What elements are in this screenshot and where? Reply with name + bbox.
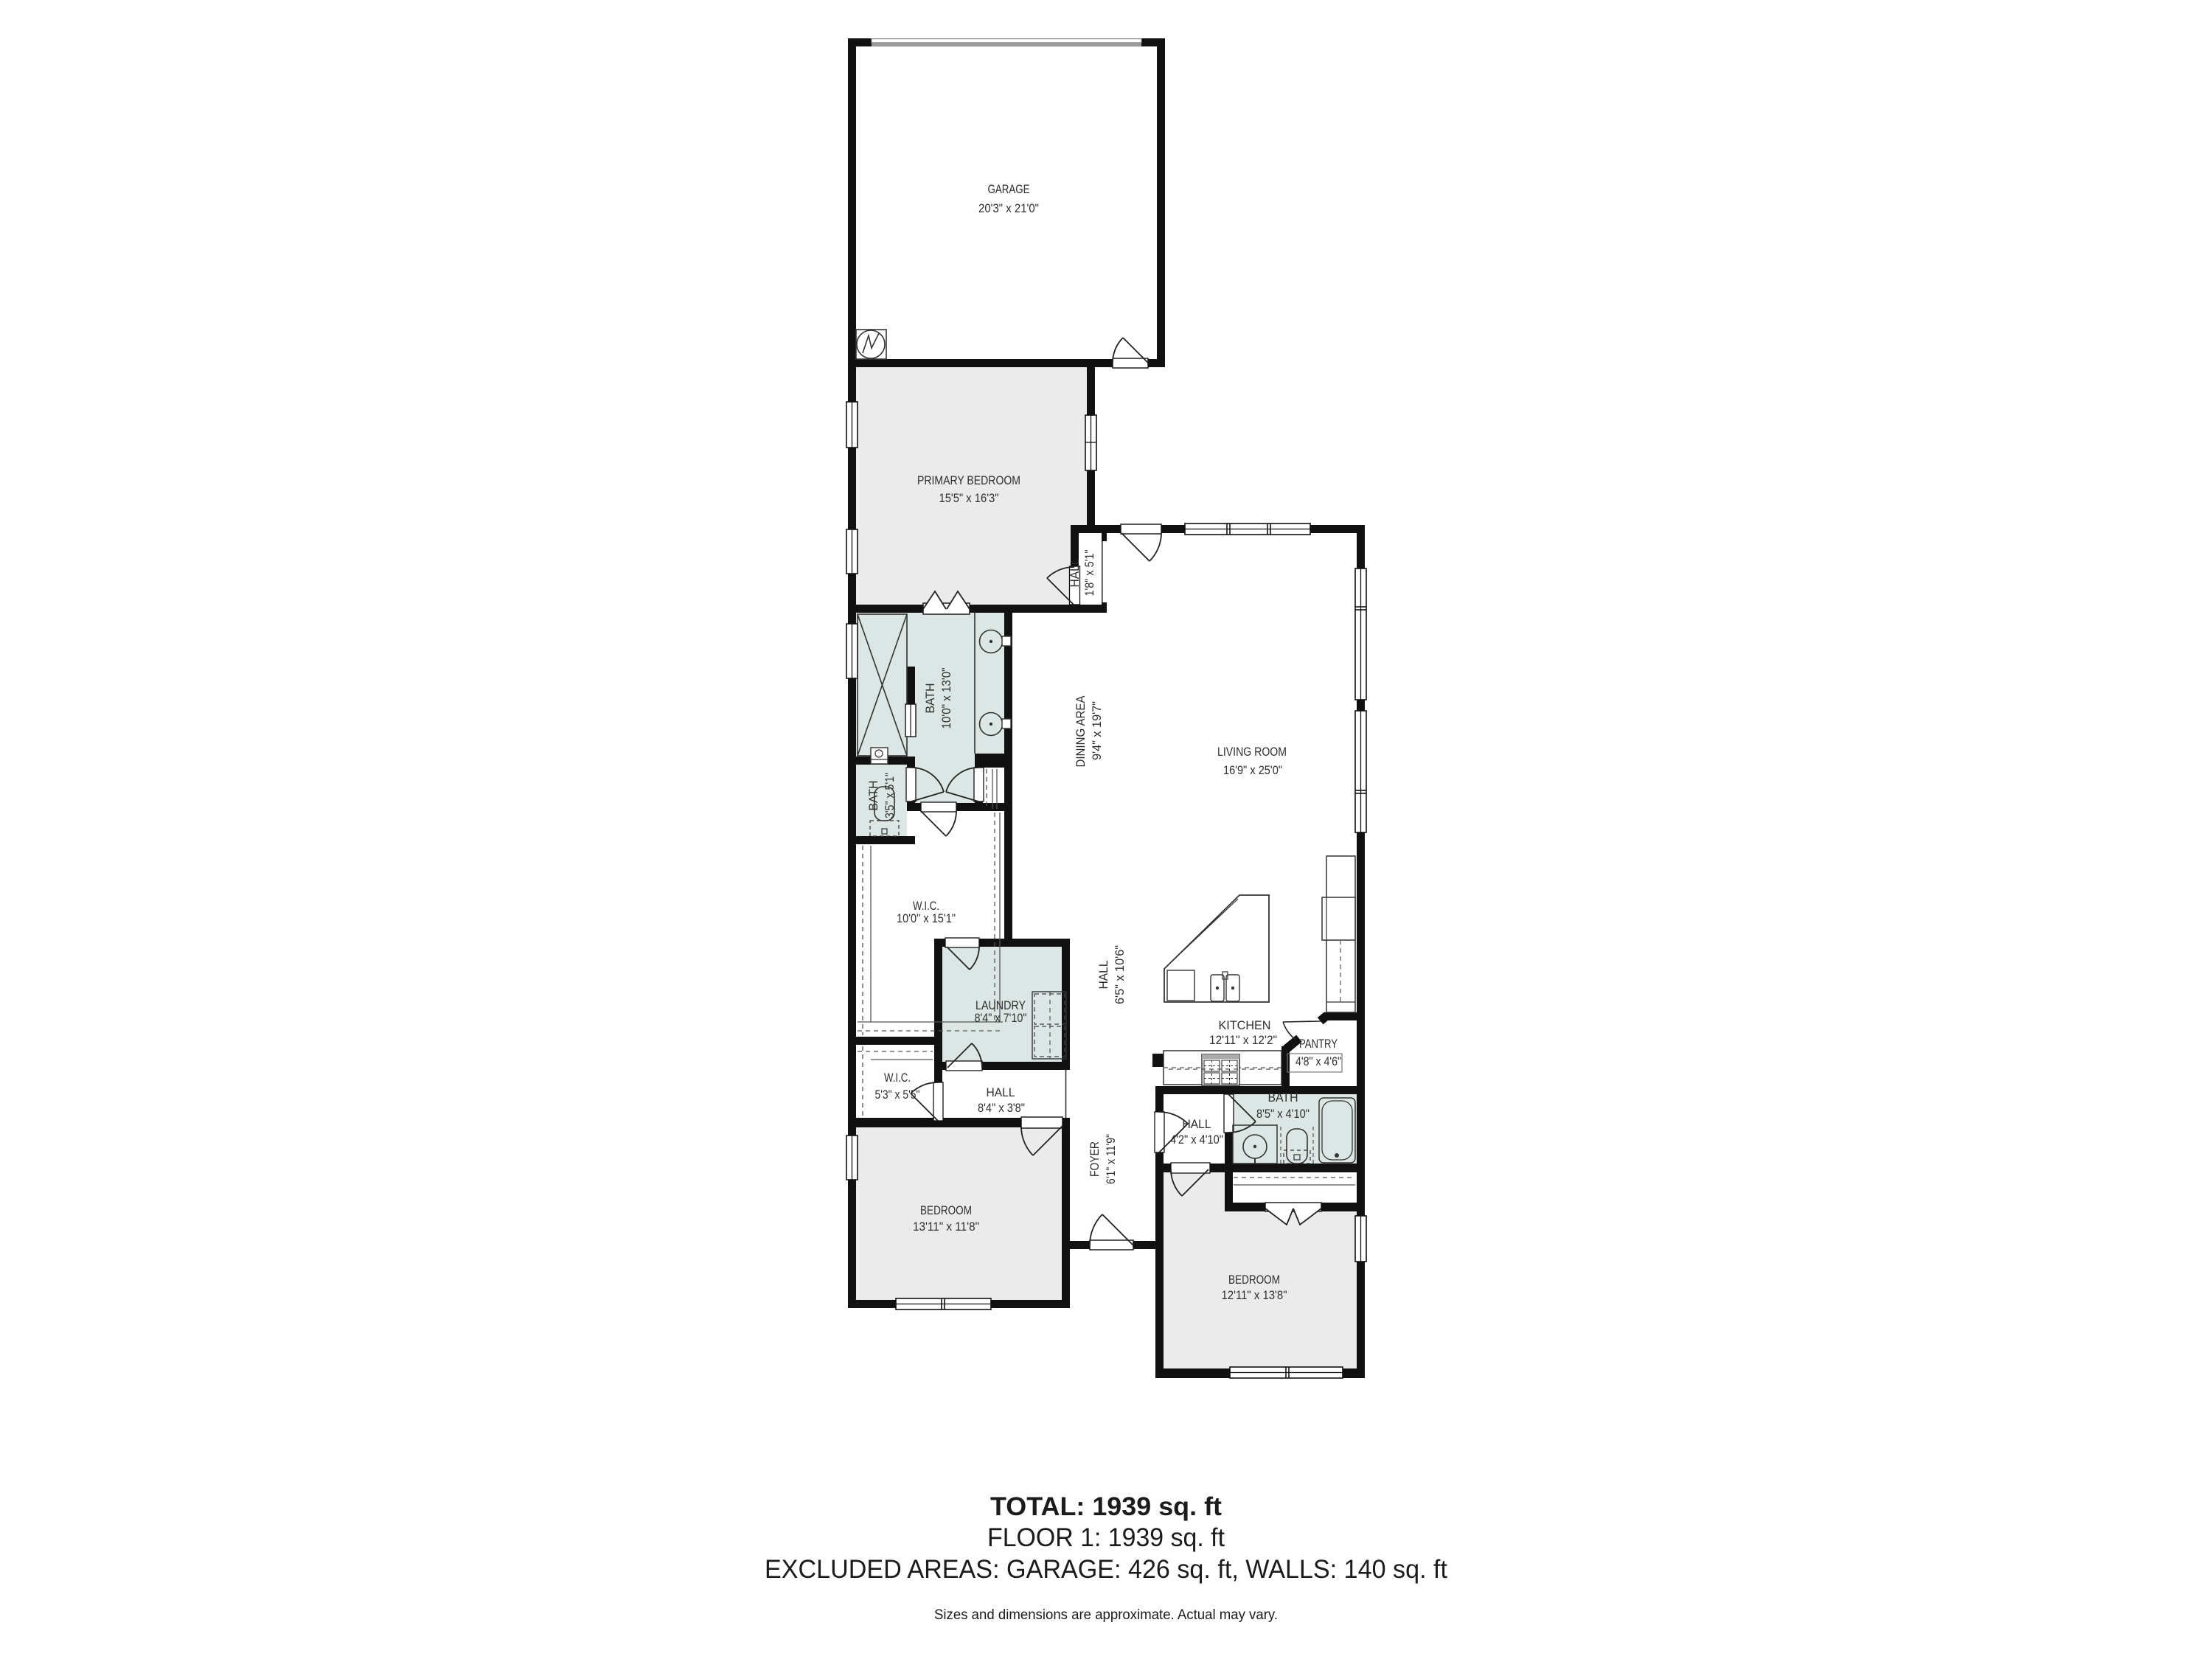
svg-text:12'11" x 13'8": 12'11" x 13'8" bbox=[1222, 1289, 1287, 1302]
svg-text:HALL: HALL bbox=[1183, 1117, 1211, 1131]
svg-text:HALL: HALL bbox=[1068, 559, 1082, 588]
svg-text:10'0" x 13'0": 10'0" x 13'0" bbox=[940, 667, 953, 728]
svg-text:FOYER: FOYER bbox=[1088, 1141, 1102, 1177]
svg-text:PANTRY: PANTRY bbox=[1299, 1037, 1338, 1051]
svg-text:8'5" x 4'10": 8'5" x 4'10" bbox=[1256, 1107, 1310, 1121]
svg-text:BATH: BATH bbox=[866, 781, 880, 811]
svg-text:6'5" x 10'6": 6'5" x 10'6" bbox=[1113, 945, 1127, 1004]
svg-text:20'3" x 21'0": 20'3" x 21'0" bbox=[978, 202, 1039, 215]
svg-text:BATH: BATH bbox=[1268, 1091, 1298, 1105]
svg-text:Sizes and dimensions are appro: Sizes and dimensions are approximate. Ac… bbox=[934, 1607, 1278, 1623]
svg-text:EXCLUDED AREAS: GARAGE: 426 sq: EXCLUDED AREAS: GARAGE: 426 sq. ft, WALL… bbox=[765, 1555, 1447, 1584]
svg-text:GARAGE: GARAGE bbox=[988, 182, 1030, 196]
svg-text:9'4" x 19'7": 9'4" x 19'7" bbox=[1091, 701, 1104, 760]
svg-text:W.I.C.: W.I.C. bbox=[884, 1071, 911, 1085]
svg-text:3'5" x 5'1": 3'5" x 5'1" bbox=[883, 773, 897, 818]
svg-text:DINING AREA: DINING AREA bbox=[1074, 695, 1088, 768]
svg-text:16'9" x 25'0": 16'9" x 25'0" bbox=[1223, 764, 1282, 777]
svg-text:6'1" x 11'9": 6'1" x 11'9" bbox=[1105, 1134, 1118, 1184]
svg-text:BEDROOM: BEDROOM bbox=[1228, 1273, 1280, 1287]
svg-text:KITCHEN: KITCHEN bbox=[1219, 1018, 1271, 1032]
svg-text:12'11" x 12'2": 12'11" x 12'2" bbox=[1209, 1034, 1277, 1047]
svg-text:HALL: HALL bbox=[987, 1085, 1015, 1099]
svg-text:8'4" x 3'8": 8'4" x 3'8" bbox=[978, 1102, 1025, 1115]
svg-text:4'2" x 4'10": 4'2" x 4'10" bbox=[1170, 1133, 1223, 1147]
svg-text:8'4" x 7'10": 8'4" x 7'10" bbox=[975, 1012, 1027, 1025]
svg-text:HALL: HALL bbox=[1096, 961, 1110, 990]
svg-text:4'8" x 4'6": 4'8" x 4'6" bbox=[1295, 1055, 1341, 1068]
svg-text:LIVING ROOM: LIVING ROOM bbox=[1217, 745, 1287, 759]
svg-text:13'11" x 11'8": 13'11" x 11'8" bbox=[913, 1220, 979, 1234]
svg-text:W.I.C.: W.I.C. bbox=[913, 899, 939, 913]
svg-text:1'8" x 5'1": 1'8" x 5'1" bbox=[1083, 549, 1096, 596]
svg-text:5'3" x 5'5": 5'3" x 5'5" bbox=[875, 1088, 920, 1102]
svg-text:LAUNDRY: LAUNDRY bbox=[975, 998, 1026, 1012]
svg-text:BATH: BATH bbox=[923, 684, 937, 714]
svg-text:FLOOR 1: 1939 sq. ft: FLOOR 1: 1939 sq. ft bbox=[987, 1523, 1225, 1552]
svg-text:10'0" x 15'1": 10'0" x 15'1" bbox=[897, 912, 956, 925]
svg-text:15'5" x 16'3": 15'5" x 16'3" bbox=[939, 492, 999, 505]
svg-text:BEDROOM: BEDROOM bbox=[920, 1203, 972, 1217]
svg-text:PRIMARY BEDROOM: PRIMARY BEDROOM bbox=[917, 473, 1020, 487]
svg-text:TOTAL: 1939 sq. ft: TOTAL: 1939 sq. ft bbox=[990, 1492, 1222, 1521]
